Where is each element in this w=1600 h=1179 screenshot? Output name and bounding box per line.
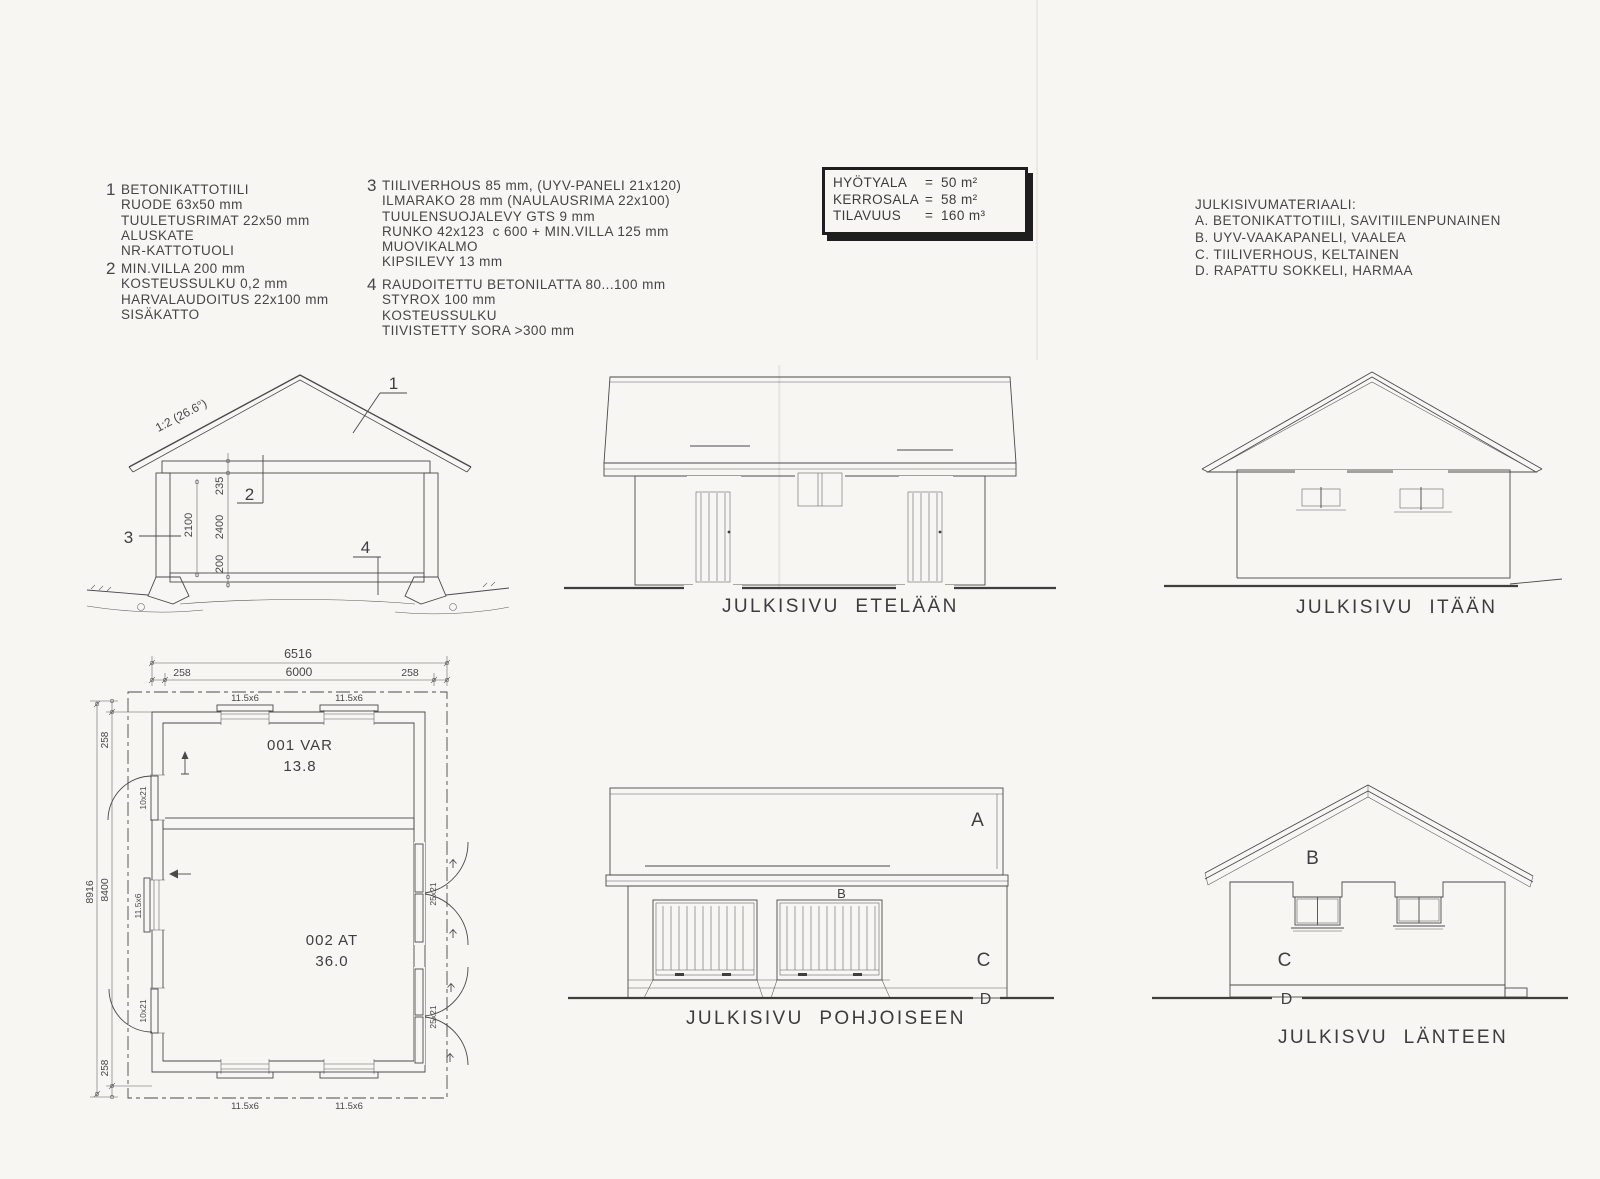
dim-height-top: 258 bbox=[100, 731, 111, 748]
north-garage-door-2 bbox=[777, 900, 882, 980]
elevation-south: JULKISIVU ETELÄÄN bbox=[560, 355, 1060, 630]
spec-line: TUULENSUOJALEVY GTS 9 mm bbox=[382, 209, 681, 224]
plan-door-left-1 bbox=[108, 775, 165, 820]
spec-line: BETONIKATTOTIILI bbox=[121, 182, 310, 197]
west-window-1 bbox=[1291, 897, 1344, 931]
info-label: KERROSALA bbox=[833, 192, 925, 209]
callout-1: 1 bbox=[389, 374, 399, 393]
spec-line: STYROX 100 mm bbox=[382, 292, 666, 307]
plan-section-arrow bbox=[169, 870, 191, 879]
room-2-area: 36.0 bbox=[315, 953, 348, 970]
callout-3: 3 bbox=[124, 528, 134, 547]
north-roof-band bbox=[606, 788, 1008, 886]
dim-width-left: 258 bbox=[173, 667, 191, 679]
cross-section-drawing: 1:2 (26.6°) 1 2 3 4 235 2400 200 2100 bbox=[85, 355, 510, 655]
material-item: D. RAPATTU SOKKELI, HARMAA bbox=[1195, 263, 1501, 280]
spec-line: SISÄKATTO bbox=[121, 307, 329, 322]
equals-sign: = bbox=[925, 175, 941, 192]
south-window bbox=[795, 470, 845, 509]
spec-list-1: 1 BETONIKATTOTIILI RUODE 63x50 mm TUULET… bbox=[106, 182, 310, 258]
plan-window-bottom-1 bbox=[217, 1059, 273, 1078]
spec-list-4: 4 RAUDOITETTU BETONILATTA 80...100 mm ST… bbox=[367, 277, 666, 338]
spec-2-number: 2 bbox=[106, 261, 116, 322]
spec-line: RUODE 63x50 mm bbox=[121, 197, 310, 212]
info-row: HYÖTYALA = 50 m² bbox=[833, 175, 1017, 192]
west-roof bbox=[1205, 785, 1533, 887]
scan-streak bbox=[778, 365, 781, 590]
info-value: 58 m² bbox=[941, 192, 978, 209]
dim-2400: 2400 bbox=[214, 515, 226, 539]
plan-door-right-2 bbox=[414, 967, 468, 1065]
door-size-label: 25x21 bbox=[428, 1005, 438, 1028]
equals-sign: = bbox=[925, 208, 941, 225]
drawing-sheet: 1 BETONIKATTOTIILI RUODE 63x50 mm TUULET… bbox=[0, 0, 1600, 1179]
elevation-east: JULKISIVU ITÄÄN bbox=[1150, 355, 1570, 630]
caption-north: JULKISIVU POHJOISEEN bbox=[686, 1008, 966, 1029]
spec-line: MUOVIKALMO bbox=[382, 239, 681, 254]
material-label-d: D bbox=[980, 991, 993, 1008]
material-item: A. BETONIKATTOTIILI, SAVITIILENPUNAINEN bbox=[1195, 213, 1501, 230]
spec-line: KIPSILEVY 13 mm bbox=[382, 254, 681, 269]
spec-line: ILMARAKO 28 mm (NAULAUSRIMA 22x100) bbox=[382, 193, 681, 208]
section-walls bbox=[156, 473, 438, 577]
spec-line: TIILIVERHOUS 85 mm, (UYV-PANELI 21x120) bbox=[382, 178, 681, 193]
door-size-label: 10x21 bbox=[138, 999, 148, 1022]
spec-4-number: 4 bbox=[367, 277, 377, 338]
material-label-a: A bbox=[971, 810, 985, 831]
spec-line: KOSTEUSSULKU 0,2 mm bbox=[121, 276, 329, 291]
door-size-label: 25x21 bbox=[428, 882, 438, 905]
east-ground-right bbox=[1510, 579, 1562, 584]
material-label-c: C bbox=[977, 950, 992, 971]
plan-window-top-2 bbox=[320, 705, 378, 725]
south-door-2 bbox=[899, 476, 953, 585]
plan-north-arrow bbox=[181, 751, 189, 774]
info-label: HYÖTYALA bbox=[833, 175, 925, 192]
spec-3-number: 3 bbox=[367, 178, 377, 270]
info-value: 50 m² bbox=[941, 175, 978, 192]
window-size-label: 11.5x6 bbox=[335, 1101, 363, 1112]
south-door-1 bbox=[687, 476, 741, 585]
spec-line: NR-KATTOTUOLI bbox=[121, 243, 310, 258]
caption-west: JULKISVU LÄNTEEN bbox=[1278, 1027, 1508, 1048]
plan-door-right-1 bbox=[414, 842, 468, 945]
plan-window-left bbox=[144, 878, 165, 932]
section-ground-lines bbox=[87, 582, 509, 614]
caption-east: JULKISIVU ITÄÄN bbox=[1296, 597, 1497, 618]
spec-line: RUNKO 42x123 c 600 + MIN.VILLA 125 mm bbox=[382, 224, 681, 239]
plan-window-top-1 bbox=[217, 705, 273, 725]
info-label: TILAVUUS bbox=[833, 208, 925, 225]
spec-line: ALUSKATE bbox=[121, 228, 310, 243]
section-ceiling bbox=[162, 461, 430, 473]
plan-window-bottom-2 bbox=[320, 1059, 378, 1078]
floor-plan-drawing: 6516 258 6000 258 8916 258 8400 258 11.5… bbox=[85, 640, 505, 1120]
area-info-box: HYÖTYALA = 50 m² KERROSALA = 58 m² TILAV… bbox=[822, 167, 1028, 235]
paper-fold-line bbox=[1036, 0, 1038, 360]
west-wall-outline bbox=[1230, 882, 1505, 985]
window-size-label: 11.5x6 bbox=[231, 1101, 259, 1112]
elevation-north: A B C D JULKISIVU POHJOISEEN bbox=[560, 740, 1060, 1040]
window-size-label: 11.5x6 bbox=[231, 693, 259, 704]
spec-line: HARVALAUDOITUS 22x100 mm bbox=[121, 292, 329, 307]
spec-line: KOSTEUSSULKU bbox=[382, 308, 666, 323]
east-wall-brick bbox=[1237, 470, 1510, 578]
material-label-b: B bbox=[1306, 848, 1320, 869]
spec-1-number: 1 bbox=[106, 182, 116, 258]
callout-4: 4 bbox=[361, 538, 371, 557]
material-label-d: D bbox=[1281, 991, 1294, 1008]
facade-materials-legend: JULKISIVUMATERIAALI: A. BETONIKATTOTIILI… bbox=[1195, 196, 1501, 280]
spec-line: RAUDOITETTU BETONILATTA 80...100 mm bbox=[382, 277, 666, 292]
material-item: C. TIILIVERHOUS, KELTAINEN bbox=[1195, 247, 1501, 264]
dim-total-height: 8916 bbox=[84, 880, 96, 904]
materials-title: JULKISIVUMATERIAALI: bbox=[1195, 196, 1501, 213]
spec-list-2: 2 MIN.VILLA 200 mm KOSTEUSSULKU 0,2 mm H… bbox=[106, 261, 329, 322]
room-1-area: 13.8 bbox=[283, 758, 316, 775]
caption-south: JULKISIVU ETELÄÄN bbox=[722, 596, 959, 617]
material-label-b: B bbox=[837, 886, 847, 901]
east-roof bbox=[1202, 372, 1542, 472]
material-label-c: C bbox=[1278, 950, 1293, 971]
spec-list-3: 3 TIILIVERHOUS 85 mm, (UYV-PANELI 21x120… bbox=[367, 178, 681, 270]
south-door-steps bbox=[684, 585, 954, 594]
plan-partition-wall bbox=[163, 818, 414, 829]
dim-height-mid: 8400 bbox=[99, 878, 111, 902]
material-item: B. UYV-VAAKAPANELI, VAALEA bbox=[1195, 230, 1501, 247]
east-window-1 bbox=[1295, 470, 1347, 510]
info-value: 160 m³ bbox=[941, 208, 985, 225]
info-row: TILAVUUS = 160 m³ bbox=[833, 208, 1017, 225]
dim-width-right: 258 bbox=[401, 667, 419, 679]
dim-2100: 2100 bbox=[183, 513, 195, 537]
west-foundation bbox=[1230, 985, 1527, 997]
dim-total-width: 6516 bbox=[284, 647, 312, 661]
east-window-2 bbox=[1393, 470, 1452, 512]
window-size-label: 11.5x6 bbox=[133, 893, 143, 918]
window-size-label: 11.5x6 bbox=[335, 693, 363, 704]
west-window-2 bbox=[1393, 897, 1445, 929]
spec-line: TUULETUSRIMAT 22x50 mm bbox=[121, 213, 310, 228]
room-1-name: 001 VAR bbox=[267, 737, 333, 754]
dim-height-bot: 258 bbox=[100, 1059, 111, 1076]
dim-width-mid: 6000 bbox=[286, 665, 313, 679]
south-roof bbox=[604, 377, 1016, 476]
plan-door-left-2 bbox=[109, 988, 165, 1033]
door-size-label: 10x21 bbox=[138, 786, 148, 809]
dim-200: 200 bbox=[214, 555, 226, 573]
elevation-west: B C D JULKISVU LÄNTEEN bbox=[1150, 740, 1570, 1060]
north-garage-door-1 bbox=[653, 900, 757, 980]
dim-235: 235 bbox=[214, 477, 226, 495]
room-2-name: 002 AT bbox=[306, 932, 358, 949]
spec-line: MIN.VILLA 200 mm bbox=[121, 261, 329, 276]
east-foundation bbox=[1210, 578, 1510, 586]
info-row: KERROSALA = 58 m² bbox=[833, 192, 1017, 209]
equals-sign: = bbox=[925, 192, 941, 209]
callout-2: 2 bbox=[245, 485, 255, 504]
spec-line: TIIVISTETTY SORA >300 mm bbox=[382, 323, 666, 338]
